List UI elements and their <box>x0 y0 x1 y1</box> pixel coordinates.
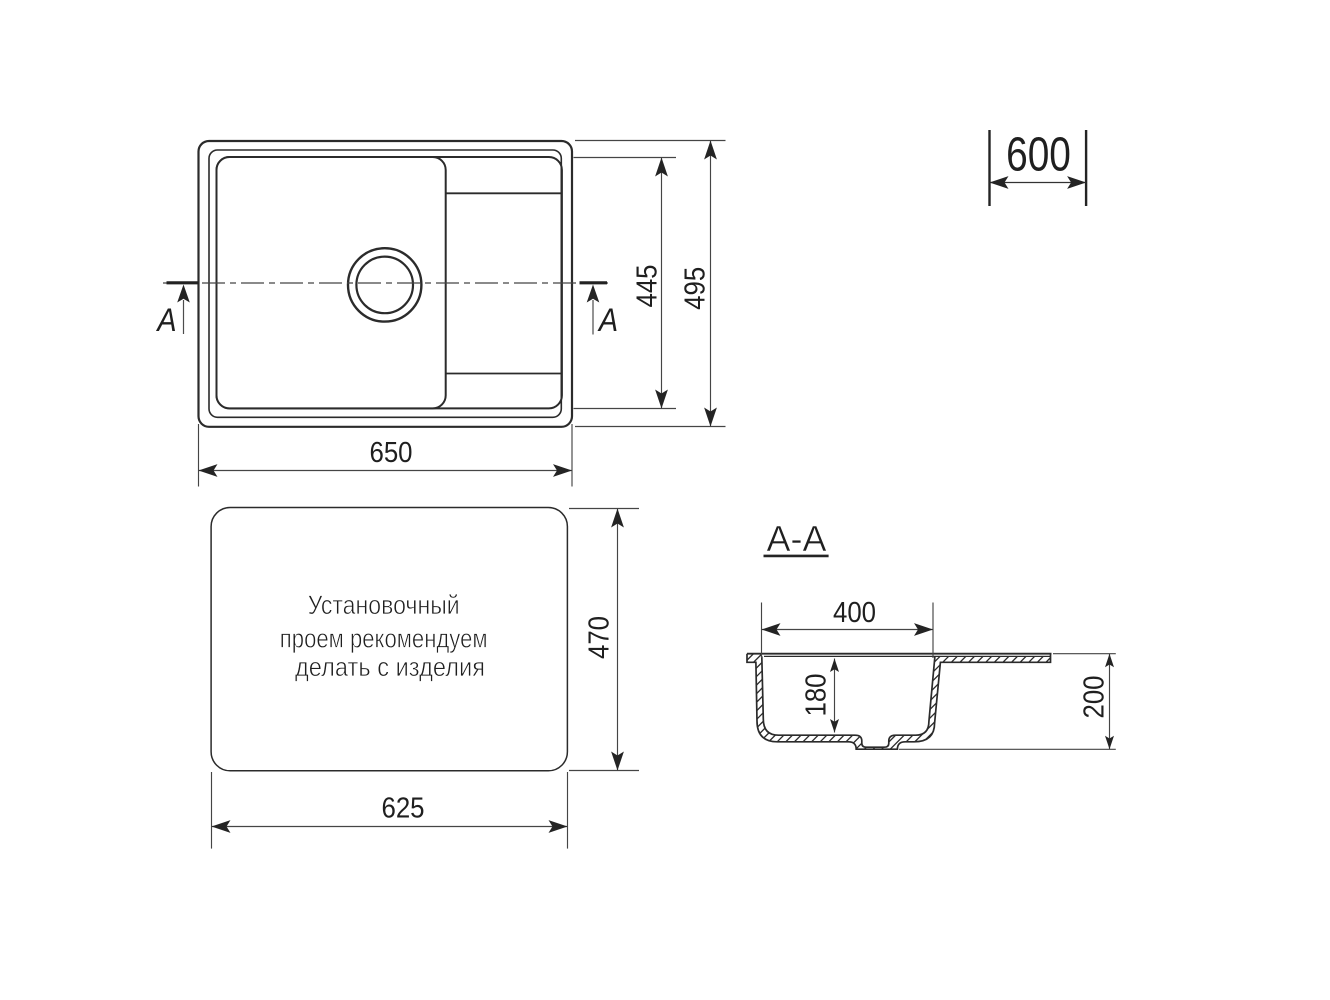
svg-text:200: 200 <box>1077 675 1110 718</box>
svg-text:A-A: A-A <box>766 518 826 559</box>
svg-text:A: A <box>597 303 618 339</box>
svg-text:Установочный: Установочный <box>308 591 460 621</box>
svg-text:400: 400 <box>833 595 876 628</box>
svg-text:A: A <box>155 303 176 339</box>
svg-text:445: 445 <box>630 264 663 307</box>
svg-text:625: 625 <box>381 791 424 824</box>
svg-text:650: 650 <box>369 436 412 469</box>
svg-text:600: 600 <box>1006 128 1071 182</box>
svg-text:проем рекомендуем: проем рекомендуем <box>280 625 488 655</box>
svg-text:делать с изделия: делать с изделия <box>295 652 485 682</box>
svg-text:495: 495 <box>678 267 711 310</box>
svg-text:180: 180 <box>799 673 832 716</box>
svg-text:470: 470 <box>582 616 615 659</box>
